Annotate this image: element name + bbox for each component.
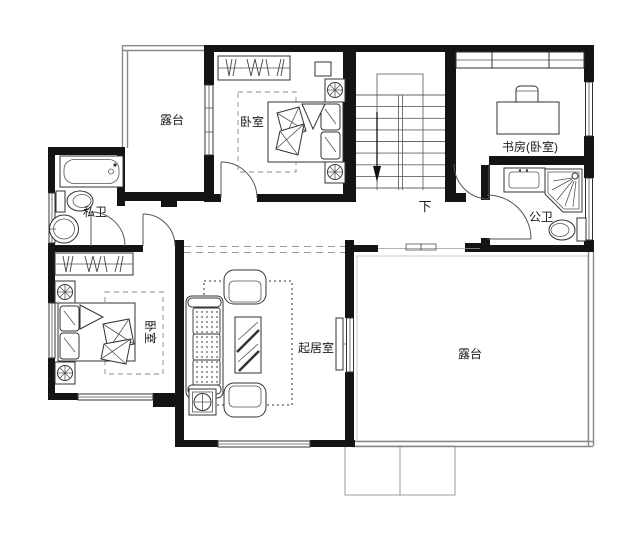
bedside-table-icon (325, 79, 345, 102)
label-study: 书房(卧室) (502, 139, 558, 154)
floor-plan-canvas: 露台 卧室 书房(卧室) 私卫 公卫 卧室 起居室 露台 下 (0, 0, 640, 535)
bathtub-icon (60, 156, 123, 187)
bedside-table-icon (55, 281, 75, 303)
terrace-threshold (378, 244, 480, 250)
window-bedroom1-terrace (205, 85, 213, 155)
window-study-right (586, 82, 593, 136)
window-bedroom2-bottom (78, 394, 153, 400)
desk-icon (497, 102, 559, 134)
armchair-icon (224, 383, 266, 417)
sink-icon (50, 215, 79, 243)
label-bedroom-bottom-left: 卧室 (143, 320, 158, 344)
wardrobe-icon (218, 56, 290, 80)
window-bath-right (586, 178, 593, 240)
room-bedroom-top (218, 56, 345, 183)
label-bedroom-top: 卧室 (240, 114, 264, 129)
label-public-bath: 公卫 (529, 210, 553, 224)
wardrobe-icon (55, 253, 133, 275)
toilet-icon (549, 218, 586, 241)
floor-plan-page: 露台 卧室 书房(卧室) 私卫 公卫 卧室 起居室 露台 下 (0, 0, 640, 535)
door-bedroom-top (221, 162, 257, 198)
bedside-table-icon (325, 162, 345, 183)
label-stairs-down: 下 (418, 199, 431, 214)
shower-icon (545, 169, 582, 212)
window-living-terrace (347, 318, 354, 372)
plant-stand-icon (189, 389, 216, 415)
window-study-top (456, 52, 584, 68)
room-bedroom-bottom-left (55, 253, 163, 384)
tv-icon (336, 318, 346, 370)
window-living-bottom (218, 441, 310, 447)
open-boundary-dashed (184, 247, 345, 253)
bathroom-sink-icon (504, 168, 545, 192)
room-private-bath (50, 156, 124, 243)
staircase (356, 74, 445, 190)
armchair-icon (224, 270, 266, 304)
stair-treads (356, 95, 445, 188)
coffee-table-icon (235, 317, 261, 373)
stair-railing (377, 74, 423, 190)
window-bedroom2-left (49, 303, 55, 358)
stair-down-arrow-icon (373, 112, 381, 182)
door-bedroom-bottom-left (143, 214, 175, 246)
room-study (497, 86, 559, 134)
bedside-table-icon (55, 362, 75, 384)
label-terrace-top-left: 露台 (160, 112, 184, 127)
label-terrace-bottom-right: 露台 (458, 346, 482, 361)
doors (91, 162, 531, 246)
door-public-bath (487, 195, 531, 239)
label-living-room: 起居室 (298, 340, 334, 355)
double-bed-icon (268, 102, 343, 162)
room-public-bath (504, 168, 586, 241)
sofa-icon (186, 296, 223, 398)
label-private-bath: 私卫 (83, 205, 107, 219)
double-bed-icon (58, 303, 135, 364)
nightstand-box-icon (315, 62, 331, 76)
